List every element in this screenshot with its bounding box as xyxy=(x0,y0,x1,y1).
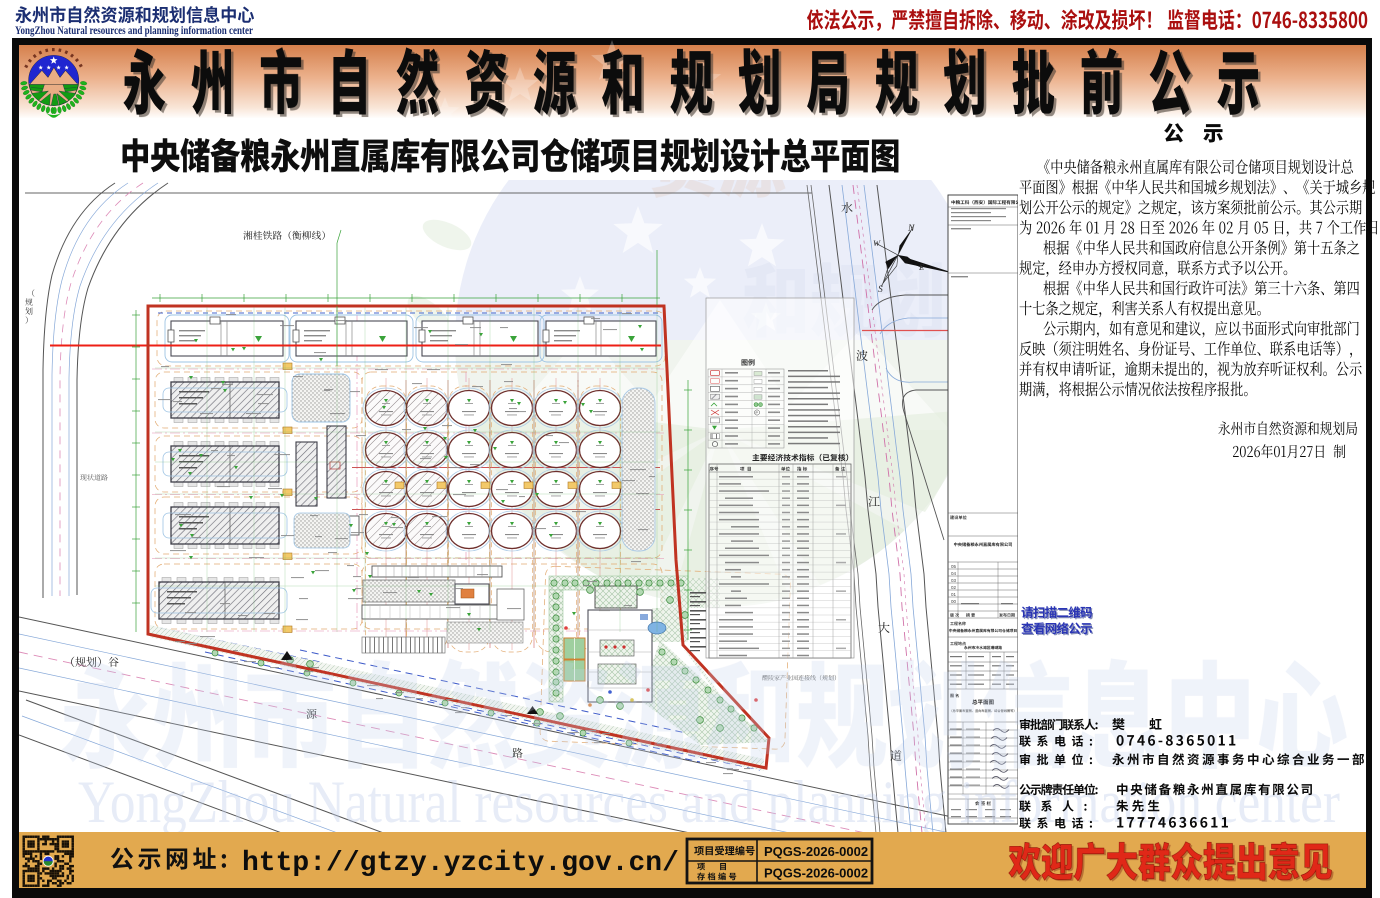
svg-text:02: 02 xyxy=(951,585,957,590)
svg-text:YongZhou Natural resources and: YongZhou Natural resources and planning … xyxy=(15,23,253,37)
svg-text:01: 01 xyxy=(951,592,957,597)
svg-text:E: E xyxy=(918,262,925,272)
svg-text:05: 05 xyxy=(951,564,957,569)
svg-text:W: W xyxy=(873,238,881,248)
svg-text:PQGS-2026-0002: PQGS-2026-0002 xyxy=(764,844,868,859)
svg-text:PQGS-2026-0002: PQGS-2026-0002 xyxy=(764,866,868,881)
svg-text:00: 00 xyxy=(951,599,957,604)
svg-text:03: 03 xyxy=(951,578,957,583)
svg-text:04: 04 xyxy=(951,571,957,576)
svg-text:S: S xyxy=(878,285,883,295)
svg-text:http://gtzy.yzcity.gov.cn/: http://gtzy.yzcity.gov.cn/ xyxy=(242,848,679,879)
svg-text:N: N xyxy=(907,224,915,234)
